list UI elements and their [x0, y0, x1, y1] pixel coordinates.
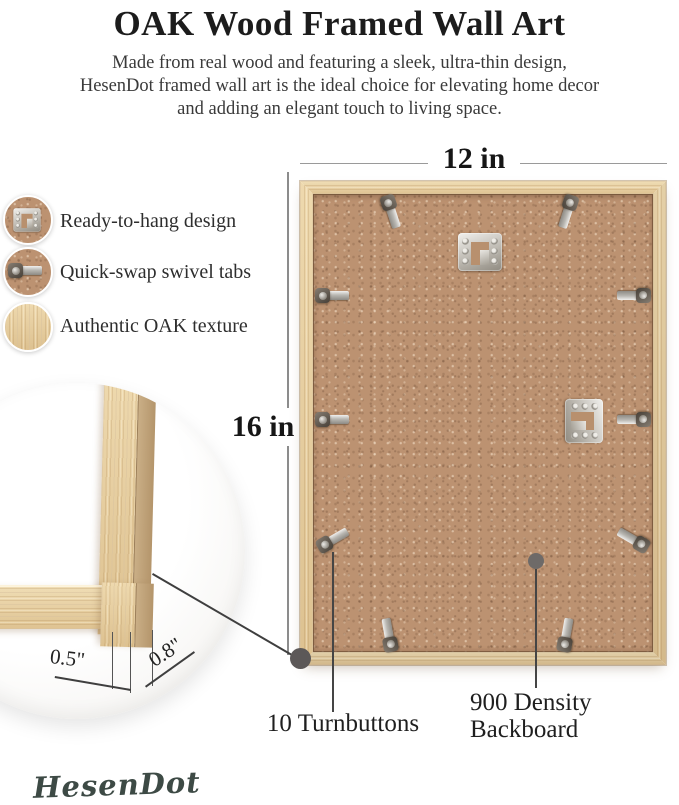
brand-logo: HesenDot — [32, 765, 201, 805]
width-dimension-line-right — [519, 163, 667, 164]
turnbutton-icon-art — [8, 263, 44, 278]
height-dimension-label: 16 in — [226, 408, 300, 446]
feature-label-tabs: Quick-swap swivel tabs — [60, 261, 251, 284]
turnbuttons-callout-line — [332, 552, 334, 712]
feature-item-tabs — [3, 247, 53, 297]
page-title: OAK Wood Framed Wall Art — [0, 4, 679, 44]
backboard-callout-dot — [528, 553, 544, 569]
feature-label-hang: Ready-to-hang design — [60, 210, 236, 233]
feature-item-oak — [3, 302, 53, 352]
subtitle: Made from real wood and featuring a slee… — [0, 52, 679, 121]
frame-profile-corner-overlap — [100, 582, 154, 647]
feature-item-hang — [3, 195, 53, 245]
turnbutton — [615, 288, 651, 303]
frame-edge-top — [300, 181, 666, 194]
backboard-callout-line2: Backboard — [470, 716, 592, 743]
subtitle-line-3: and adding an elegant touch to living sp… — [0, 98, 679, 121]
backboard-callout-line — [535, 569, 537, 688]
sawtooth-hanger-landscape — [565, 399, 603, 443]
extension-line — [112, 632, 113, 689]
frame-edge-left — [300, 181, 313, 665]
feature-label-oak: Authentic OAK texture — [60, 315, 248, 338]
turnbutton — [315, 412, 351, 427]
turnbuttons-callout-label: 10 Turnbuttons — [255, 710, 431, 738]
turnbutton — [615, 412, 651, 427]
face-width-label: 0.5" — [49, 644, 87, 673]
sawtooth-hanger-icon — [3, 195, 53, 245]
frame-profile-horizontal — [0, 585, 105, 629]
sawtooth-hanger-icon-art — [13, 208, 40, 232]
frame-edge-right — [653, 181, 666, 665]
oak-texture-icon — [3, 302, 53, 352]
extension-line — [130, 632, 131, 693]
frame-edge-bottom — [300, 652, 666, 665]
subtitle-line-2: HesenDot framed wall art is the ideal ch… — [0, 75, 679, 98]
turnbutton-icon — [3, 247, 53, 297]
corner-callout-dot — [290, 648, 311, 669]
width-dimension-line-left — [300, 163, 428, 164]
backboard-callout-label: 900 Density Backboard — [470, 689, 592, 743]
product-infographic: OAK Wood Framed Wall Art Made from real … — [0, 0, 679, 805]
width-dimension-label: 12 in — [428, 142, 520, 176]
turnbutton — [315, 288, 351, 303]
subtitle-line-1: Made from real wood and featuring a slee… — [0, 52, 679, 75]
sawtooth-hanger-portrait — [458, 233, 502, 271]
corner-detail-photo — [0, 383, 245, 719]
backboard-callout-line1: 900 Density — [470, 689, 592, 716]
